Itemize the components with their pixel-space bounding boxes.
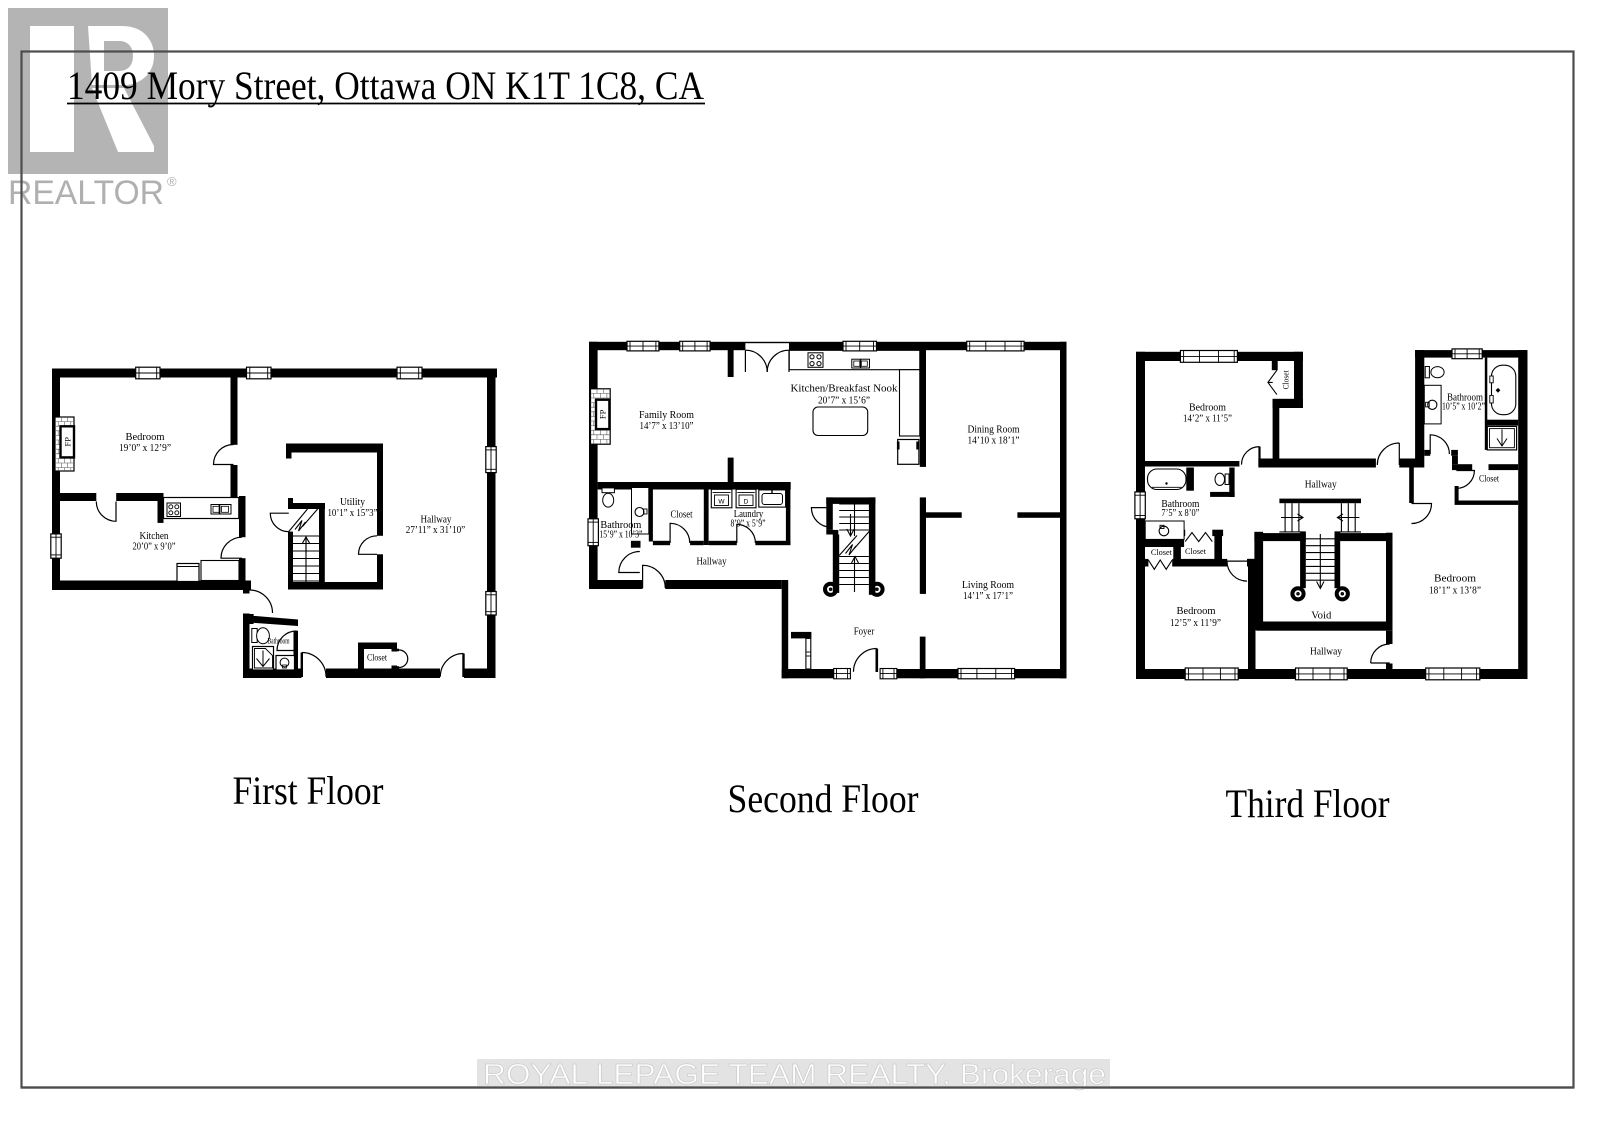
svg-text:®: ® [167,174,177,189]
svg-text:Kitchen: Kitchen [140,531,170,542]
svg-text:FP: FP [62,437,72,447]
svg-text:Void: Void [1311,611,1332,622]
svg-text:Family Room: Family Room [639,410,694,421]
svg-text:14’7” x 13’10”: 14’7” x 13’10” [640,421,694,432]
svg-text:15’9” x 10’3”: 15’9” x 10’3” [599,530,642,541]
svg-text:27’11” x 31’10”: 27’11” x 31’10” [406,525,466,536]
svg-text:W: W [718,499,725,506]
svg-text:Hallway: Hallway [697,557,728,568]
svg-text:14’2” x 11’5”: 14’2” x 11’5” [1183,414,1232,425]
svg-text:Bedroom: Bedroom [1189,403,1226,414]
svg-text:Hallway: Hallway [1310,647,1343,658]
svg-text:Utility: Utility [340,497,366,508]
svg-text:10’5” x 10’2”: 10’5” x 10’2” [1442,402,1485,413]
svg-text:20’7” x 15’6”: 20’7” x 15’6” [818,396,870,407]
svg-text:18’1” x 13’8”: 18’1” x 13’8” [1429,586,1481,597]
svg-text:Dining Room: Dining Room [968,425,1020,436]
svg-text:Bedroom: Bedroom [1434,574,1476,585]
svg-text:12’5” x 11’9”: 12’5” x 11’9” [1170,618,1221,629]
svg-text:20’0” x 9’0”: 20’0” x 9’0” [133,542,176,553]
svg-text:Bedroom: Bedroom [1177,606,1216,617]
svg-text:19’0” x 12’9”: 19’0” x 12’9” [119,443,171,454]
svg-text:14’10 x 18’1”: 14’10 x 18’1” [968,436,1020,447]
svg-text:Closet: Closet [1151,547,1173,557]
svg-text:Closet: Closet [671,510,693,521]
svg-text:1409 Mory Street, Ottawa ON K1: 1409 Mory Street, Ottawa ON K1T 1C8, CA [67,63,704,108]
svg-text:14’1” x 17’1”: 14’1” x 17’1” [963,591,1013,602]
svg-text:Bedroom: Bedroom [126,432,165,443]
svg-text:Hallway: Hallway [421,515,453,526]
svg-text:10’1” x 15”3”: 10’1” x 15”3” [328,508,378,519]
svg-text:Third Floor: Third Floor [1226,781,1390,826]
svg-text:7’5” x 8’0”: 7’5” x 8’0” [1161,508,1199,519]
svg-text:Living Room: Living Room [962,580,1014,591]
svg-text:REALTOR: REALTOR [8,174,164,212]
svg-text:Second Floor: Second Floor [728,776,919,821]
svg-text:FP: FP [598,409,608,419]
svg-text:First Floor: First Floor [233,768,384,813]
svg-text:Foyer: Foyer [854,627,875,638]
svg-text:Closet: Closet [1479,474,1499,484]
svg-text:Bathroom: Bathroom [268,636,290,646]
svg-text:Kitchen/Breakfast Nook: Kitchen/Breakfast Nook [791,384,899,395]
svg-text:Hallway: Hallway [1305,480,1338,491]
svg-text:D: D [744,499,749,506]
svg-text:Closet: Closet [367,653,387,663]
svg-text:Closet: Closet [1185,546,1207,556]
svg-text:8’9” x 5’9”: 8’9” x 5’9” [731,519,766,530]
svg-text:ROYAL LEPAGE TEAM REALTY, Brok: ROYAL LEPAGE TEAM REALTY, Brokerage [483,1059,1106,1091]
svg-text:Closet: Closet [1280,370,1290,390]
